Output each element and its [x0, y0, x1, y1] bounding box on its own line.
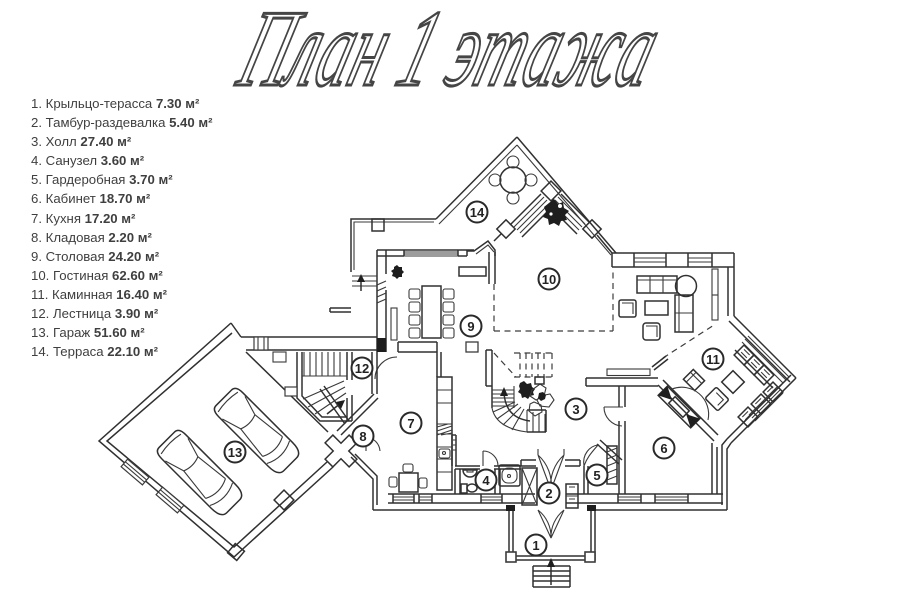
- svg-text:10: 10: [542, 272, 556, 287]
- svg-text:2: 2: [545, 486, 552, 501]
- svg-text:13: 13: [228, 445, 242, 460]
- svg-text:5: 5: [593, 468, 600, 483]
- svg-text:11: 11: [706, 352, 720, 367]
- svg-text:8: 8: [359, 429, 366, 444]
- svg-text:7: 7: [407, 416, 414, 431]
- svg-text:4: 4: [482, 473, 490, 488]
- svg-text:12: 12: [355, 361, 369, 376]
- svg-text:1: 1: [532, 538, 539, 553]
- svg-text:14: 14: [470, 205, 485, 220]
- svg-text:9: 9: [467, 319, 474, 334]
- svg-text:6: 6: [660, 441, 667, 456]
- svg-text:3: 3: [572, 402, 579, 417]
